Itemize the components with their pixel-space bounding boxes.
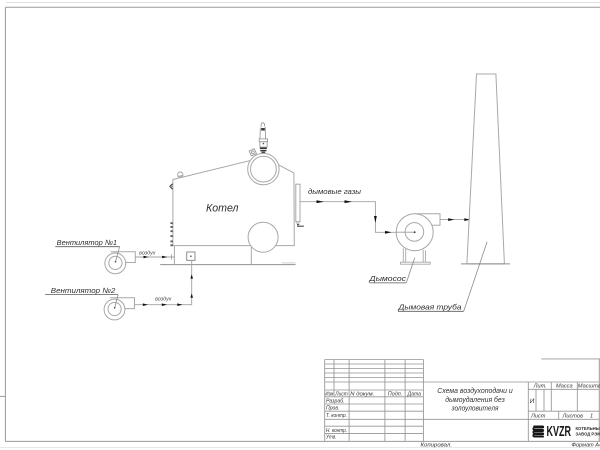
svg-text:Вентилятор №2: Вентилятор №2 <box>51 286 116 295</box>
svg-text:дымовые газы: дымовые газы <box>308 187 361 196</box>
svg-text:KVZR: KVZR <box>547 423 572 440</box>
svg-text:Котел: Котел <box>206 202 239 214</box>
svg-text:воздух: воздух <box>155 296 172 302</box>
svg-text:дымоудаления без: дымоудаления без <box>445 395 505 404</box>
svg-text:Дымосос: Дымосос <box>368 274 406 283</box>
svg-text:Изм: Изм <box>325 391 333 397</box>
svg-text:Подп.: Подп. <box>388 391 403 397</box>
svg-text:И: И <box>530 398 535 405</box>
svg-text:Дымовая труба: Дымовая труба <box>397 302 461 311</box>
svg-text:Лист: Лист <box>334 391 348 397</box>
svg-text:КОТЕЛЬНЫЙ: КОТЕЛЬНЫЙ <box>576 426 600 431</box>
svg-text:Масса: Масса <box>556 384 573 390</box>
svg-text:1: 1 <box>590 414 593 420</box>
svg-text:Н. контр.: Н. контр. <box>326 428 347 434</box>
svg-text:Копировал.: Копировал. <box>421 442 453 448</box>
svg-text:Т. контр.: Т. контр. <box>326 413 347 419</box>
svg-text:Лист: Лист <box>530 414 546 420</box>
svg-text:золоуловителя: золоуловителя <box>451 404 499 413</box>
svg-text:Вентилятор №1: Вентилятор №1 <box>57 238 118 247</box>
svg-text:Разраб.: Разраб. <box>326 399 345 405</box>
svg-text:Пров.: Пров. <box>326 406 340 412</box>
svg-text:Схема воздухоподачи и: Схема воздухоподачи и <box>437 386 513 395</box>
svg-text:Формат А4: Формат А4 <box>572 442 600 448</box>
svg-text:воздух: воздух <box>139 250 156 256</box>
svg-text:Дата: Дата <box>407 391 421 397</box>
svg-text:Утв.: Утв. <box>325 435 336 441</box>
svg-text:N докум.: N докум. <box>350 391 374 397</box>
svg-text:ЗАВОД РЭМЭКС: ЗАВОД РЭМЭКС <box>576 432 600 437</box>
svg-text:Лит.: Лит. <box>533 384 547 390</box>
svg-text:Масштаб: Масштаб <box>578 384 600 390</box>
svg-text:Листов: Листов <box>562 414 583 420</box>
